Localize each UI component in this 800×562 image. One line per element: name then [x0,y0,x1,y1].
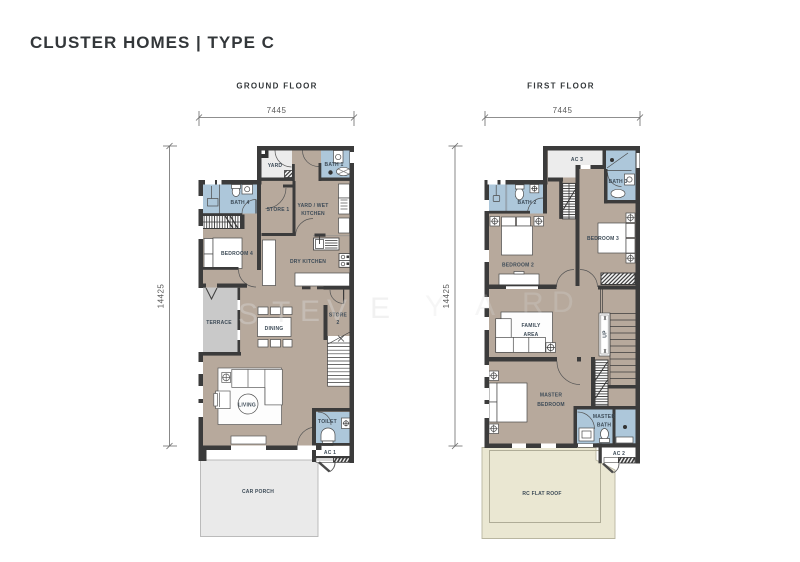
svg-text:R: R [522,287,544,320]
svg-text:FIRST FLOOR: FIRST FLOOR [527,82,595,91]
svg-text:STORE 1: STORE 1 [267,207,290,213]
svg-text:BATH 3: BATH 3 [609,179,628,185]
svg-text:BATH 1: BATH 1 [325,162,344,168]
svg-text:AREA: AREA [524,332,539,338]
svg-text:KITCHEN: KITCHEN [301,211,325,217]
svg-text:YARD / WET: YARD / WET [298,203,329,209]
svg-text:AC 3: AC 3 [571,157,583,163]
svg-text:D: D [552,286,574,319]
svg-text:GROUND FLOOR: GROUND FLOOR [236,82,317,91]
svg-text:Y: Y [425,290,445,323]
svg-text:AC 2: AC 2 [613,451,625,457]
svg-text:BEDROOM 4: BEDROOM 4 [221,251,253,257]
svg-text:TERRACE: TERRACE [206,320,232,326]
svg-text:TOILET: TOILET [318,419,337,425]
svg-text:7445: 7445 [267,106,287,115]
svg-text:AC 1: AC 1 [324,450,336,456]
svg-text:BEDROOM: BEDROOM [537,402,565,408]
svg-text:7445: 7445 [553,106,573,115]
svg-text:V: V [327,294,347,327]
svg-text:LIVING: LIVING [238,403,256,409]
svg-text:14425: 14425 [157,284,166,309]
svg-text:FAMILY: FAMILY [521,323,541,329]
svg-text:BEDROOM 2: BEDROOM 2 [502,263,534,269]
svg-text:E: E [370,292,390,325]
svg-text:BATH 2: BATH 2 [518,200,537,206]
svg-text:YARD: YARD [268,163,283,169]
svg-text:DRY KITCHEN: DRY KITCHEN [290,259,326,265]
svg-text:UP: UP [603,330,609,338]
svg-text:E: E [300,295,320,328]
svg-text:BATH: BATH [597,423,612,429]
svg-text:T: T [272,296,290,329]
svg-text:CAR PORCH: CAR PORCH [242,489,274,495]
svg-text:A: A [475,289,495,322]
svg-text:BEDROOM 3: BEDROOM 3 [587,236,619,242]
svg-text:S: S [238,298,258,331]
svg-text:CLUSTER HOMES | TYPE C: CLUSTER HOMES | TYPE C [30,33,275,52]
svg-text:BATH 4: BATH 4 [231,200,250,206]
svg-text:MASTER: MASTER [593,414,616,420]
svg-text:MASTER: MASTER [540,393,563,399]
svg-text:RC FLAT ROOF: RC FLAT ROOF [522,491,561,497]
